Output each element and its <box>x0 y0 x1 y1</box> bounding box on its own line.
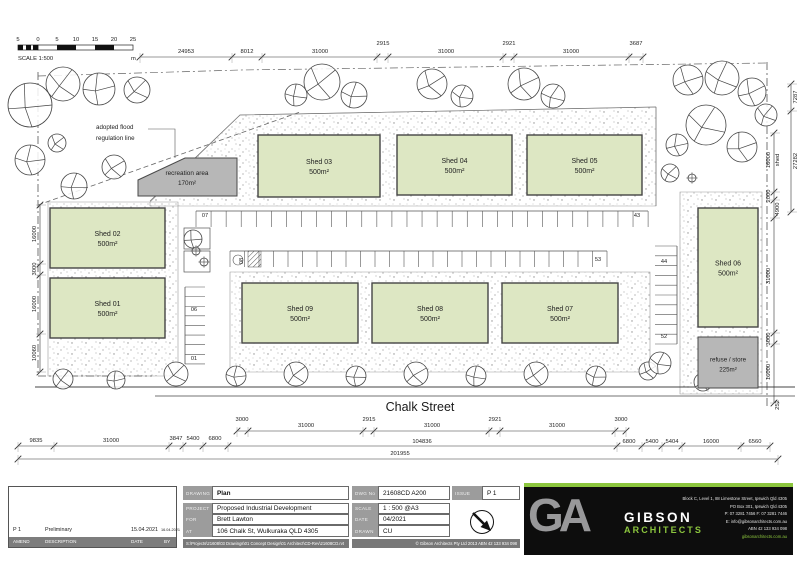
revision-description: Preliminary <box>45 527 72 533</box>
at-label: AT <box>183 525 212 537</box>
drawn-label: DRAWN <box>352 525 378 537</box>
date-label: DATE <box>352 514 378 525</box>
revision-header-description: DESCRIPTION <box>45 539 76 544</box>
copyright: © Gibson Architects Pty Ltd 2013 ABN 42 … <box>352 539 520 548</box>
revision-table: P 1 Preliminary 15.04.2021 16.04.2021 AM… <box>8 486 177 548</box>
date-value: 04/2021 <box>378 514 450 525</box>
scale-label: SCALE <box>352 503 378 514</box>
project-name: Proposed Industrial Development <box>212 503 349 514</box>
logo-ga-monogram: GA <box>528 488 587 542</box>
revision-stamp: 16.04.2021 <box>161 528 180 532</box>
logo-address-line: PO Box 301, Ipswich Qld 4305 <box>682 503 787 511</box>
revision-date: 15.04.2021 <box>131 527 158 533</box>
file-path: S:\Projects\21608\03 Drawings\01 Concept… <box>183 539 349 548</box>
logo-address: Block C, Level 1, 88 Limestone Street, I… <box>682 495 787 541</box>
project-address: 106 Chalk St, Wulkuraka QLD 4305 <box>212 525 349 537</box>
logo-address-line: E: info@gibsonarchitects.com.au <box>682 518 787 526</box>
revision-header-date: DATE <box>131 539 143 544</box>
dwg-no: 21608CD A200 <box>378 486 450 500</box>
client-name: Brett Lawton <box>212 514 349 525</box>
logo-address-line: P: 07 3281 7456 F: 07 3281 7446 <box>682 510 787 518</box>
north-arrow-icon <box>468 508 496 536</box>
scale-value: 1 : 500 @A3 <box>378 503 450 514</box>
drawing-title: Plan <box>212 486 349 500</box>
gibson-architects-logo: GA GIBSON ARCHITECTS Block C, Level 1, 8… <box>524 487 793 555</box>
drawing-label: DRAWING <box>183 486 212 500</box>
for-label: FOR <box>183 514 212 525</box>
revision-issue: P 1 <box>13 527 21 533</box>
revision-header-by: BY <box>164 539 170 544</box>
project-label: PROJECT <box>183 503 212 514</box>
drawing-sheet: 0743085344520601Shed 03500m²Shed 04500m²… <box>0 0 800 565</box>
revision-header-amend: AMEND <box>13 539 30 544</box>
logo-address-line: gibsonarchitects.com.au <box>682 533 787 541</box>
dwg-no-label: DWG No <box>352 486 378 500</box>
logo-address-line: ABN 42 133 934 098 <box>682 525 787 533</box>
drawn-value: CU <box>378 525 450 537</box>
revision-header: AMEND DESCRIPTION DATE BY <box>9 537 176 547</box>
title-block: P 1 Preliminary 15.04.2021 16.04.2021 AM… <box>0 0 800 565</box>
issue-value: P 1 <box>482 486 520 500</box>
issue-label: ISSUE <box>452 486 482 500</box>
logo-address-line: Block C, Level 1, 88 Limestone Street, I… <box>682 495 787 503</box>
